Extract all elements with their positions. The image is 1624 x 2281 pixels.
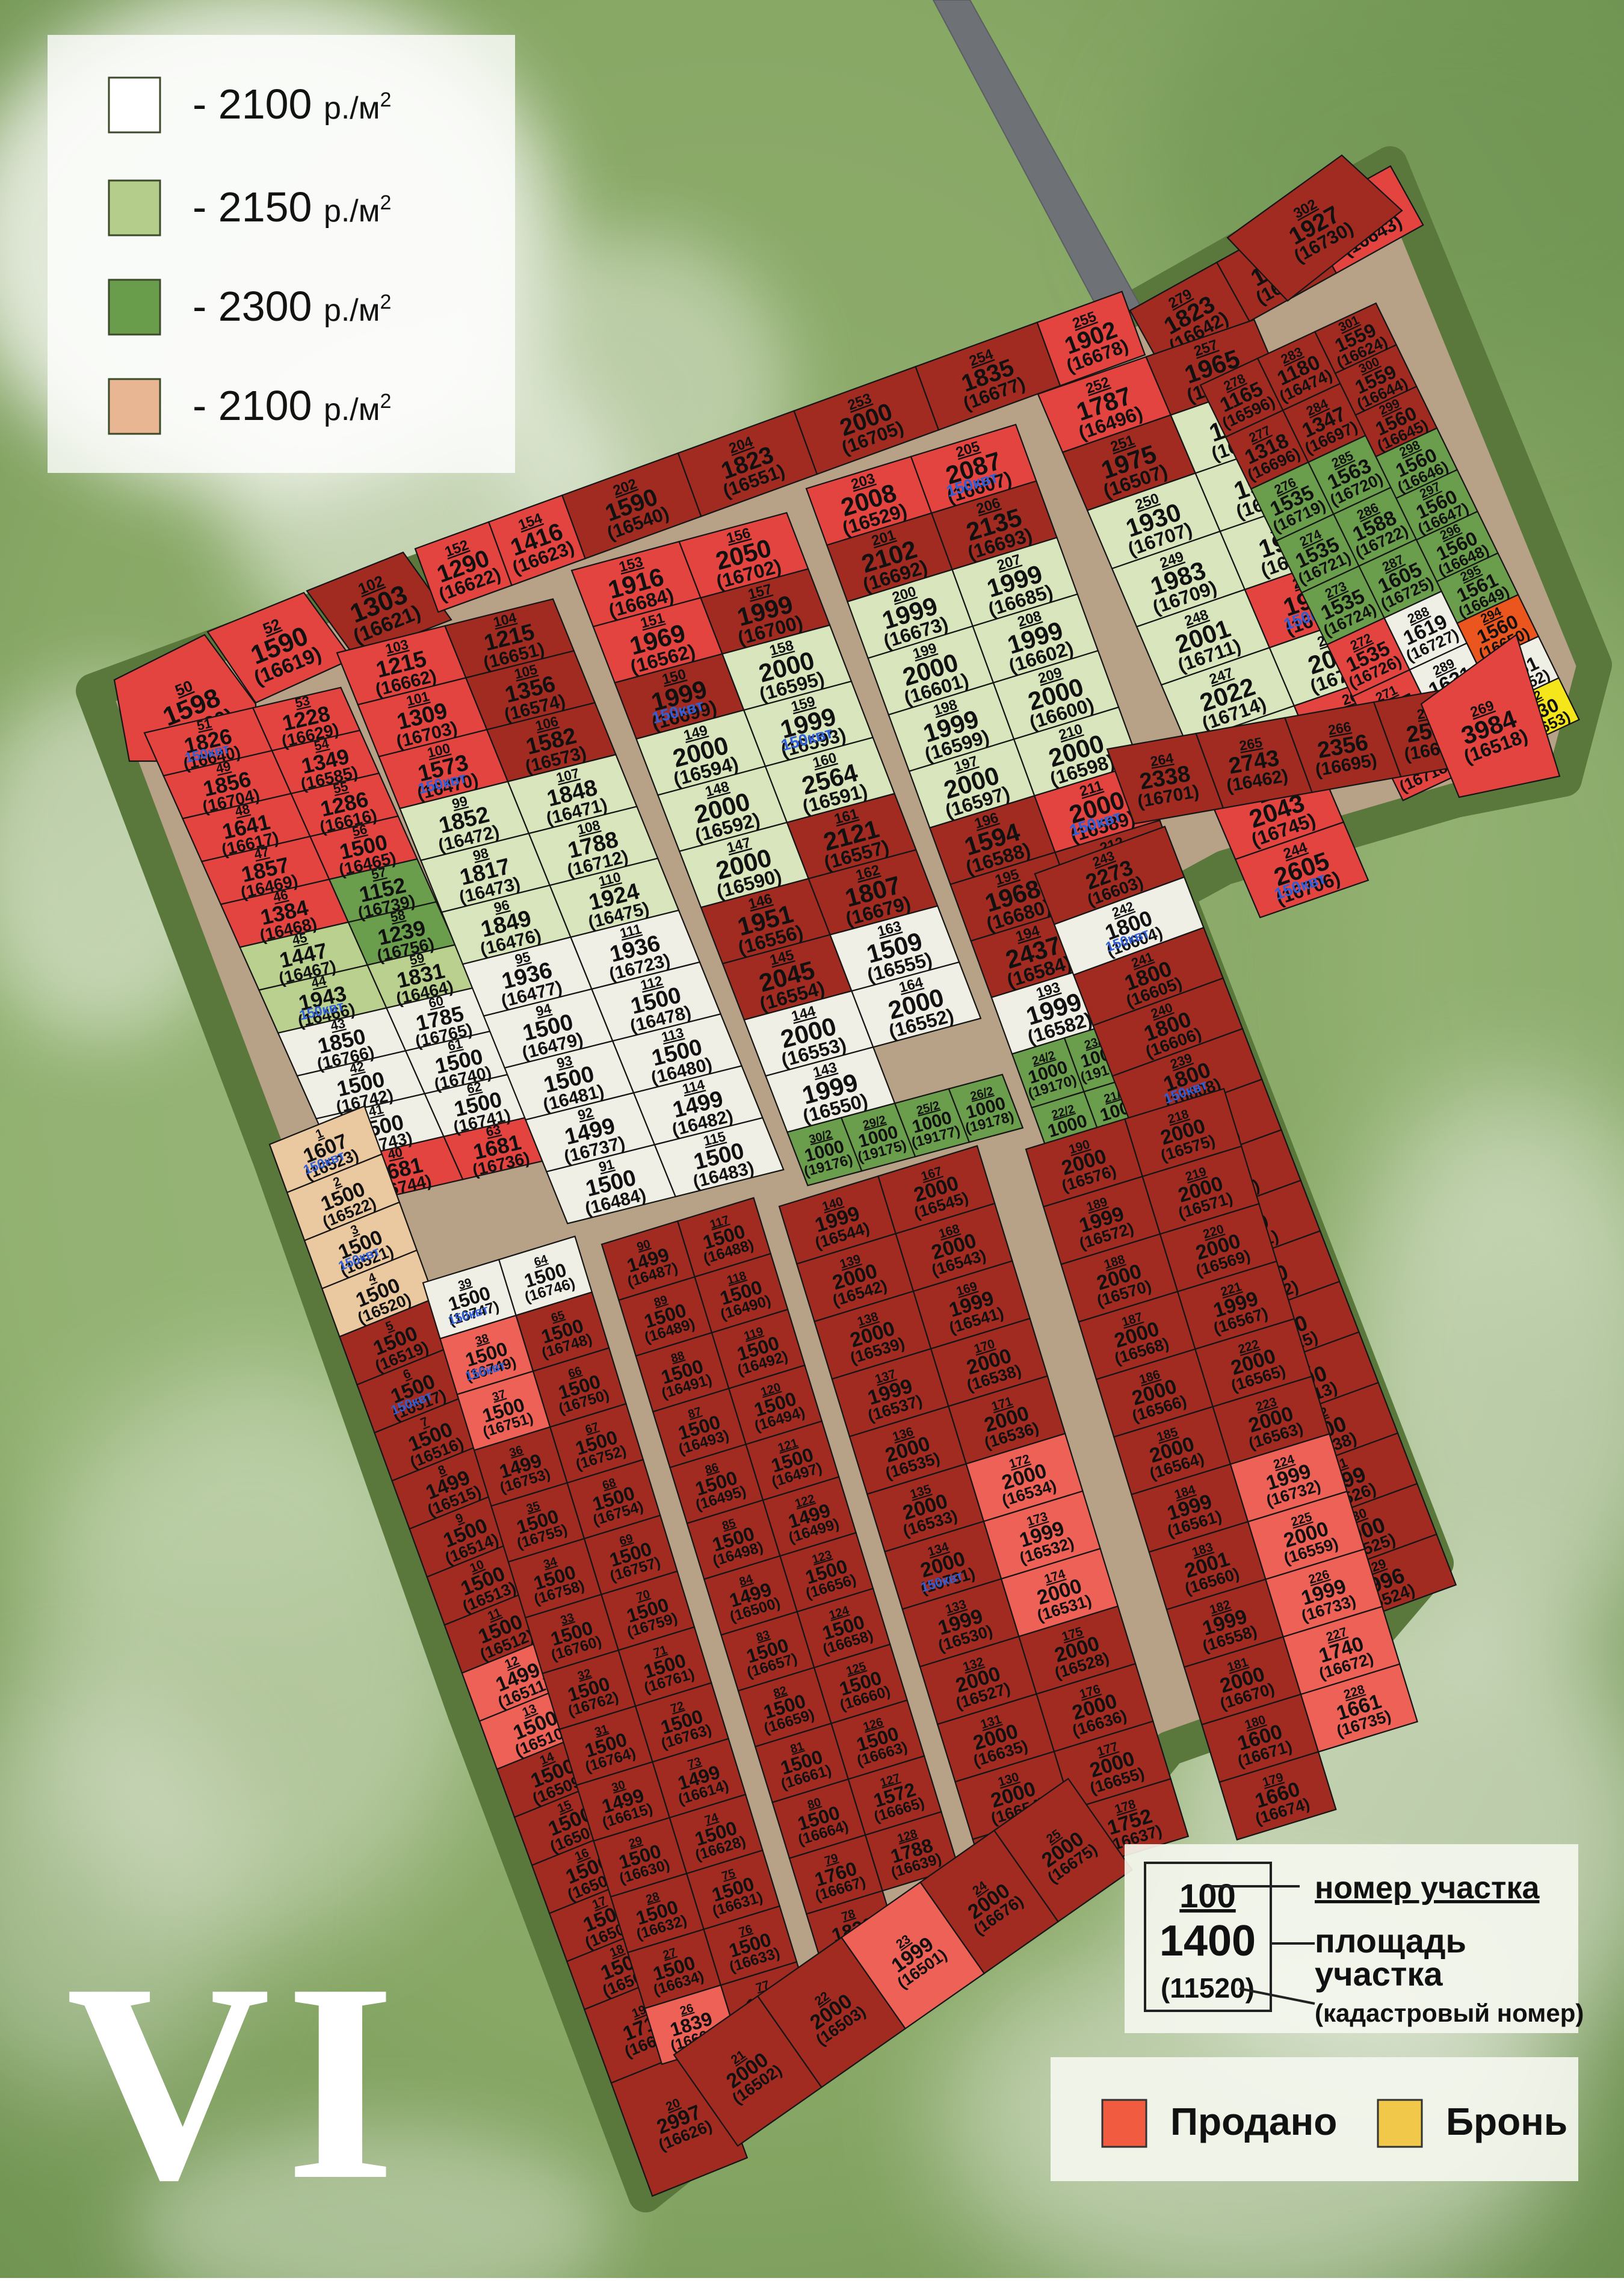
svg-text:Продано: Продано — [1170, 2100, 1337, 2143]
svg-text:1400: 1400 — [1159, 1917, 1256, 1965]
svg-text:100: 100 — [1179, 1877, 1235, 1915]
svg-text:площадь: площадь — [1315, 1922, 1466, 1960]
svg-text:(кадастровый номер): (кадастровый номер) — [1315, 1999, 1584, 2027]
svg-text:VI: VI — [66, 1925, 410, 2238]
svg-text:участка: участка — [1315, 1955, 1443, 1993]
svg-text:номер участка: номер участка — [1315, 1871, 1540, 1906]
svg-text:Бронь: Бронь — [1446, 2100, 1567, 2143]
